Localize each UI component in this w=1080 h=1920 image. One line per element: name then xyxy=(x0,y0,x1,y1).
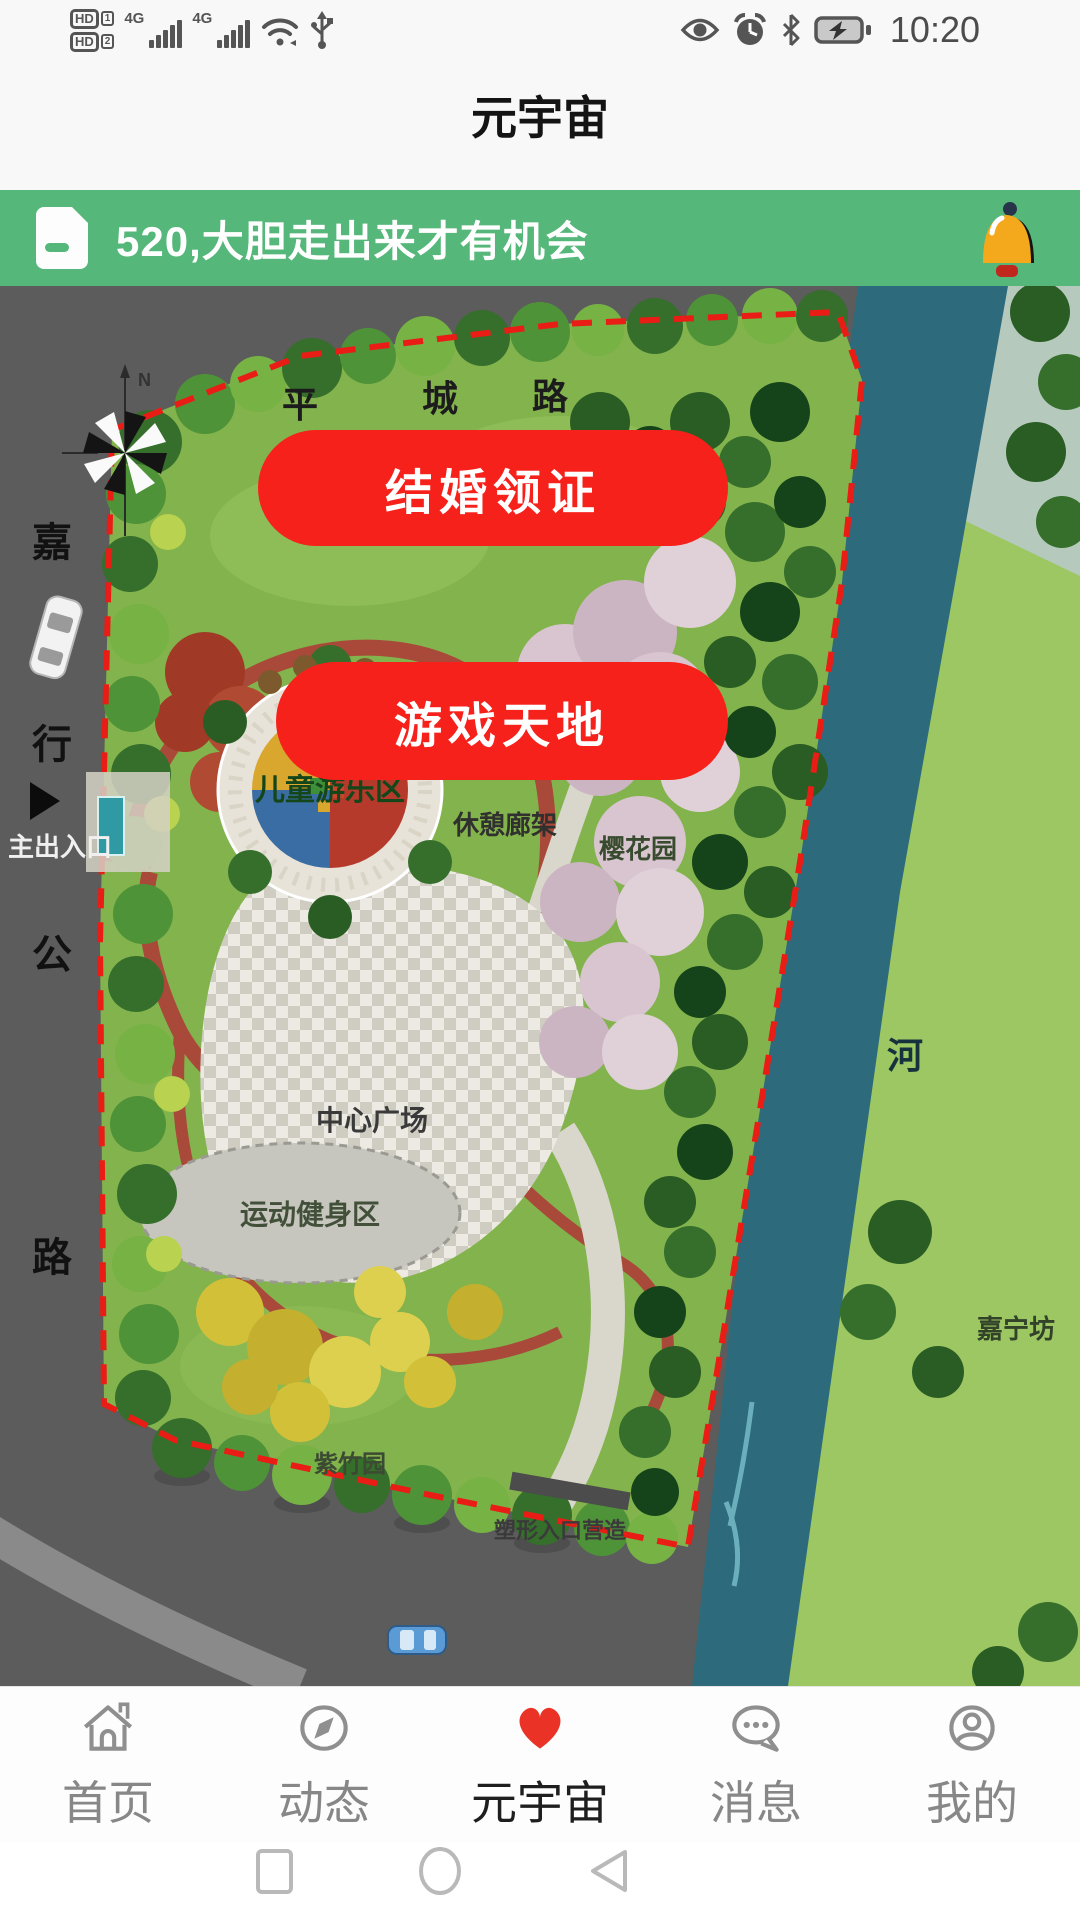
map-label-main-entrance: 主出入口 xyxy=(8,832,112,862)
wifi-icon xyxy=(260,13,300,47)
map-label-shaped-entrance: 塑形入口营造 xyxy=(494,1518,626,1543)
tab-messages[interactable]: 消息 xyxy=(648,1687,864,1843)
message-icon xyxy=(723,1695,789,1761)
signal-icon: 4G xyxy=(124,10,182,50)
heart-icon xyxy=(507,1695,573,1761)
bluetooth-icon xyxy=(780,12,802,48)
tab-moments-label: 动态 xyxy=(278,1767,370,1833)
map-label-rest-pergola: 休憩廊架 xyxy=(452,810,557,840)
page-title: 元宇宙 xyxy=(0,82,1080,148)
android-navigation-bar xyxy=(0,1843,1080,1920)
map-label-road-left-4: 路 xyxy=(32,1236,73,1280)
eye-icon xyxy=(680,16,720,44)
home-circle-icon[interactable] xyxy=(421,1849,459,1893)
map-label-road-left-2: 行 xyxy=(32,723,72,767)
announcement-text: 520,大胆走出来才有机会 xyxy=(116,208,589,269)
map-label-road-top-2: 城 xyxy=(422,378,458,419)
tab-home[interactable]: 首页 xyxy=(0,1687,216,1843)
back-triangle-icon[interactable] xyxy=(593,1852,625,1890)
status-bar: HD 1 HD 2 4G 4G xyxy=(0,0,1080,60)
signal-icon-2: 4G xyxy=(192,10,250,50)
home-icon xyxy=(75,1695,141,1761)
status-right-icons: 10:20 xyxy=(680,9,980,51)
app-screen: HD 1 HD 2 4G 4G xyxy=(0,0,1080,1920)
alarm-icon xyxy=(732,12,768,48)
app-header: 元宇宙 xyxy=(0,60,1080,190)
map-label-cherry-garden: 樱花园 xyxy=(599,834,677,864)
map-label-fitness-area: 运动健身区 xyxy=(240,1198,380,1230)
map-label-river: 河 xyxy=(887,1035,923,1076)
usb-icon xyxy=(310,10,334,50)
map-label-road-top-3: 路 xyxy=(532,376,569,417)
map-label-north: N xyxy=(138,370,151,390)
recents-square-icon[interactable] xyxy=(258,1851,291,1892)
tab-profile[interactable]: 我的 xyxy=(864,1687,1080,1843)
tab-messages-label: 消息 xyxy=(710,1767,802,1833)
tab-metaverse[interactable]: 元宇宙 xyxy=(432,1687,648,1843)
game-world-button[interactable]: 游戏天地 xyxy=(276,662,728,780)
map-label-central-plaza: 中心广场 xyxy=(316,1105,428,1136)
map-label-road-left-3: 公 xyxy=(32,933,72,977)
park-map: N 平 城 路 嘉 行 公 路 主出入口 儿童游乐区 休憩廊架 xyxy=(0,286,1080,1686)
battery-charging-icon xyxy=(814,15,872,45)
status-left-icons: HD 1 HD 2 4G 4G xyxy=(70,9,334,52)
tab-home-label: 首页 xyxy=(62,1767,154,1833)
document-icon xyxy=(36,207,88,269)
tab-profile-label: 我的 xyxy=(926,1767,1018,1833)
map-label-road-top-1: 平 xyxy=(282,384,318,425)
marriage-registration-button[interactable]: 结婚领证 xyxy=(258,430,728,546)
tab-moments[interactable]: 动态 xyxy=(216,1687,432,1843)
notification-bell-icon[interactable] xyxy=(970,197,1044,279)
compass-icon xyxy=(291,1695,357,1761)
map-label-jianing-fang: 嘉宁坊 xyxy=(977,1314,1055,1344)
profile-icon xyxy=(939,1695,1005,1761)
bottom-tab-bar: 首页 动态 元宇宙 消息 xyxy=(0,1686,1080,1843)
blue-car xyxy=(388,1626,446,1654)
announcement-banner[interactable]: 520,大胆走出来才有机会 xyxy=(0,190,1080,286)
clock-time: 10:20 xyxy=(890,9,980,51)
hd1-icon: HD 1 xyxy=(70,9,114,29)
tab-metaverse-label: 元宇宙 xyxy=(471,1767,609,1833)
map-label-road-left-1: 嘉 xyxy=(32,521,72,565)
hd2-icon: HD 2 xyxy=(70,32,114,52)
map-label-bamboo-garden: 紫竹园 xyxy=(314,1451,386,1478)
